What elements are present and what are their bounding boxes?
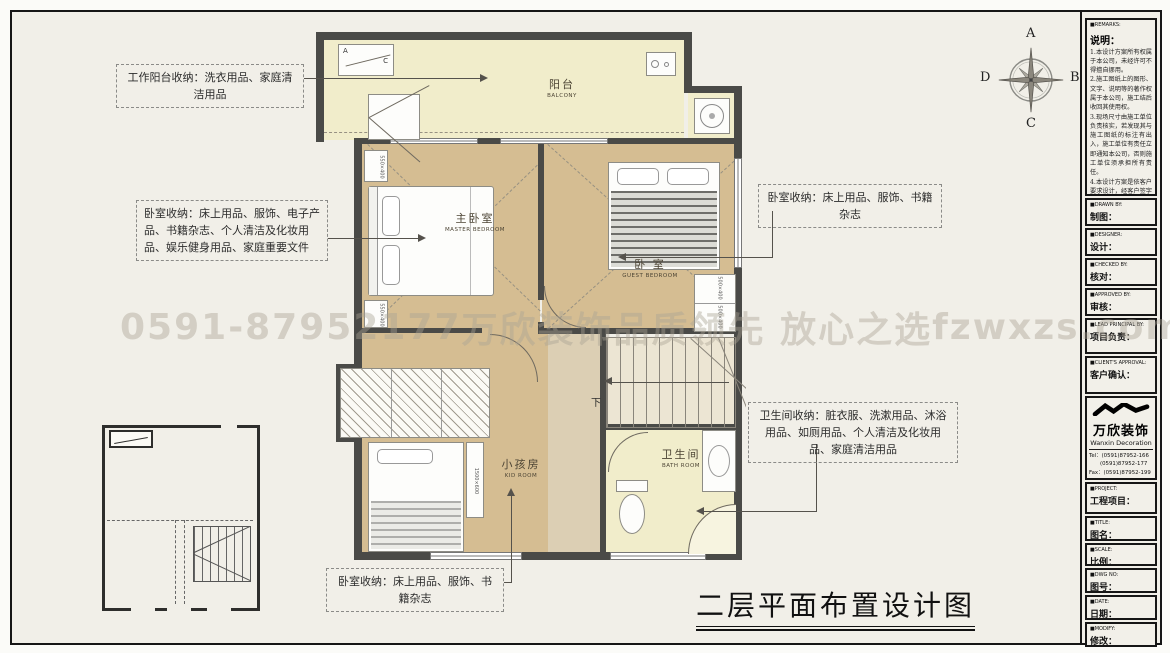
field-tag: ■DRAWN BY: xyxy=(1090,202,1152,209)
field-tag: ■TITLE: xyxy=(1090,520,1152,527)
pillow xyxy=(617,168,659,185)
sliding-door-window xyxy=(500,138,608,144)
nightstand-dim-label: 550×400 xyxy=(379,303,385,326)
pillow xyxy=(382,245,400,285)
cabinet-divider xyxy=(695,303,735,304)
date-field: ■DATE: 日期： xyxy=(1085,595,1157,620)
duvet-fold xyxy=(470,187,471,295)
remark-note: 1.本设计方案所有权属于本公司，未经许可不得擅自挪用。 xyxy=(1090,48,1152,76)
shaft-box xyxy=(368,94,420,140)
key-plan-gap xyxy=(131,605,155,611)
lift-c-label: C xyxy=(383,57,388,65)
company-block: 万欣装饰 Wanxin Decoration Tel：(0591)87952-1… xyxy=(1085,396,1157,480)
leader-line xyxy=(328,238,420,239)
sink-tap-icon xyxy=(664,62,669,67)
wall xyxy=(336,438,362,442)
wall xyxy=(600,428,606,554)
pillow xyxy=(382,196,400,236)
field-label: 核对： xyxy=(1090,270,1152,283)
leader-line xyxy=(304,78,482,79)
guest-bedroom-label: 卧 室 GUEST BEDROOM xyxy=(596,256,704,279)
balcony-label-zh: 阳台 xyxy=(522,76,602,92)
fax-line: Fax：(0591)87952-199 xyxy=(1089,469,1153,477)
leader-arrow xyxy=(418,234,426,242)
wall xyxy=(316,32,324,142)
modify-field: ■MODIFY: 修改： xyxy=(1085,622,1157,647)
leader-line xyxy=(626,257,773,258)
field-label: 修改： xyxy=(1090,634,1152,647)
key-plan-notch xyxy=(221,425,237,433)
window xyxy=(734,158,742,268)
leader-line xyxy=(704,511,817,512)
callout-kid-storage: 卧室收纳：床上用品、服饰、书籍杂志 xyxy=(326,568,504,612)
wall xyxy=(538,144,544,300)
lift-box: A C xyxy=(338,44,394,76)
bathroom-label: 卫生间 BATH ROOM xyxy=(638,446,724,469)
field-tag: ■LEAD PRINCIPAL BY: xyxy=(1090,322,1152,329)
key-plan-gap xyxy=(167,605,191,611)
remark-note: 2.施工图纸上的图形、文字、说明等的著作权属于本公司，施工结后收回其使用权。 xyxy=(1090,75,1152,112)
client-approval-field: ■CLIENT'S APPROVAL: 客户确认： xyxy=(1085,356,1157,394)
wardrobe-divider xyxy=(441,369,442,437)
guest-label-zh: 卧 室 xyxy=(596,256,704,272)
project-field: ■PROJECT: 工程项目： xyxy=(1085,482,1157,514)
master-bedroom-label: 主卧室 MASTER BEDROOM xyxy=(420,210,530,233)
callout-guest-storage: 卧室收纳：床上用品、服饰、书籍杂志 xyxy=(758,184,942,228)
nightstand: 550×400 xyxy=(364,300,388,328)
kid-bed xyxy=(368,442,464,552)
remark-note: 3.现场尺寸由施工单位负责核实，若发现其与施工图纸的标注有出入，施工单位有责任立… xyxy=(1090,113,1152,178)
master-bed xyxy=(368,186,494,296)
field-tag: ■SCALE: xyxy=(1090,547,1152,554)
checked-by-field: ■CHECKED BY: 核对： xyxy=(1085,258,1157,286)
field-label: 工程项目： xyxy=(1090,494,1152,507)
tel-line-2: (0591)87952-177 xyxy=(1089,460,1153,468)
field-tag: ■MODIFY: xyxy=(1090,626,1152,633)
designer-field: ■DESIGNER: 设计： xyxy=(1085,228,1157,256)
compass-a-label: A xyxy=(1026,26,1035,41)
duvet xyxy=(371,501,461,549)
pillow xyxy=(377,449,433,464)
toilet-bowl xyxy=(619,494,645,534)
kid-label-en: KID ROOM xyxy=(476,473,566,479)
field-label: 制图： xyxy=(1090,210,1152,223)
field-tag: ■CLIENT'S APPROVAL: xyxy=(1090,360,1152,367)
dwg-no-field: ■DWG NO: 图号： xyxy=(1085,568,1157,593)
field-tag: ■APPROVED BY: xyxy=(1090,292,1152,299)
leader-arrow xyxy=(507,488,515,496)
wall xyxy=(316,32,692,40)
title-field: ■TITLE: 图名： xyxy=(1085,516,1157,541)
key-plan-dash xyxy=(184,520,185,604)
toilet-tank xyxy=(616,480,648,492)
kid-desk: 1500×600 xyxy=(466,442,484,518)
stair-direction-arrow xyxy=(604,377,612,385)
key-plan xyxy=(102,425,260,611)
field-label: 图名： xyxy=(1090,528,1152,541)
headboard xyxy=(369,187,378,295)
stairs xyxy=(606,337,736,428)
compass-star-icon xyxy=(996,42,1066,118)
field-tag: ■DESIGNER: xyxy=(1090,232,1152,239)
guest-label-en: GUEST BEDROOM xyxy=(596,273,704,279)
field-label: 审核： xyxy=(1090,300,1152,313)
pillow xyxy=(667,168,709,185)
bath-label-zh: 卫生间 xyxy=(638,446,724,462)
remarks-heading: 说明： xyxy=(1090,36,1120,47)
nightstand-dim-label: 550×400 xyxy=(379,155,385,178)
sink-bowl-icon xyxy=(651,60,659,68)
compass-b-label: B xyxy=(1070,70,1080,85)
cabinet-dim-label: 500×400 xyxy=(717,305,723,328)
key-plan-stair-diag xyxy=(194,554,251,581)
brand-brush-icon xyxy=(1092,403,1150,416)
web-line: Web：WWW.fzwxzs.com xyxy=(1089,477,1153,480)
cabinet-dim-label: 500×400 xyxy=(717,276,723,299)
company-contact: Tel：(0591)87952-166 (0591)87952-177 Fax：… xyxy=(1089,449,1153,480)
field-label: 图号： xyxy=(1090,580,1152,593)
drawn-by-field: ■DRAWN BY: 制图： xyxy=(1085,198,1157,226)
leader-arrow xyxy=(480,74,488,82)
field-tag: ■DWG NO: xyxy=(1090,572,1152,579)
approved-by-field: ■APPROVED BY: 审核： xyxy=(1085,288,1157,316)
field-label: 比例： xyxy=(1090,555,1152,567)
master-label-zh: 主卧室 xyxy=(420,210,530,226)
remarks-tag: ■REMARKS: xyxy=(1090,22,1152,29)
nightstand: 550×400 xyxy=(364,150,388,182)
wall xyxy=(362,328,482,333)
title-block-sidebar: ■REMARKS: 说明： 1.本设计方案所有权属于本公司，未经许可不得擅自挪用… xyxy=(1080,12,1160,643)
compass-rose: A B C D xyxy=(980,26,1080,134)
sheet-frame: 0591-87952177 万欣装饰 品质领先 放心之选 fzwxzs.com … xyxy=(10,10,1162,645)
balcony-label: 阳台 BALCONY xyxy=(522,76,602,99)
callout-master-storage: 卧室收纳：床上用品、服饰、电子产品、书籍杂志、个人清洁及化妆用品、娱乐健身用品、… xyxy=(136,200,328,261)
remarks-section: ■REMARKS: 说明： 1.本设计方案所有权属于本公司，未经许可不得擅自挪用… xyxy=(1085,18,1157,196)
stair-down-label: 下 xyxy=(591,394,601,409)
compass-c-label: C xyxy=(1026,116,1036,131)
drawing-title-text: 二层平面布置设计图 xyxy=(696,584,975,627)
principal-field: ■LEAD PRINCIPAL BY: 项目负责： xyxy=(1085,318,1157,354)
drawing-title-underline xyxy=(696,629,975,631)
key-plan-lift xyxy=(109,430,153,448)
wardrobe xyxy=(340,368,490,438)
key-plan-dash xyxy=(175,520,176,604)
wall xyxy=(684,32,692,92)
scale-field: ■SCALE: 比例： xyxy=(1085,543,1157,566)
compass-d-label: D xyxy=(980,70,990,85)
leader-arrow xyxy=(618,253,626,261)
wardrobe-divider xyxy=(391,369,392,437)
key-plan-gap xyxy=(207,605,231,611)
stair-run-line xyxy=(611,382,729,383)
washing-machine-icon xyxy=(694,98,730,134)
wall xyxy=(354,138,362,560)
guest-cabinet: 500×400 500×400 xyxy=(694,274,736,332)
lift-a-label: A xyxy=(343,47,348,55)
key-plan-dash xyxy=(107,520,253,521)
field-label: 日期： xyxy=(1090,607,1152,620)
balcony-sink xyxy=(646,52,676,76)
key-plan-stairs xyxy=(193,526,251,582)
company-name-zh: 万欣装饰 xyxy=(1089,420,1153,439)
remark-note: 4.本设计方案是依客户要求设计，经客户签字确认为同意认可，不得随意更改。 xyxy=(1090,178,1152,196)
leader-arrow xyxy=(696,507,704,515)
field-tag: ■DATE: xyxy=(1090,599,1152,606)
company-name-en: Wanxin Decoration xyxy=(1089,439,1153,447)
washer-dot xyxy=(709,113,715,119)
field-tag: ■PROJECT: xyxy=(1090,486,1152,493)
kid-label-zh: 小孩房 xyxy=(476,456,566,472)
key-plan-stair-diag xyxy=(193,526,250,553)
window xyxy=(430,552,522,560)
field-label: 项目负责： xyxy=(1090,330,1152,343)
hall-floor xyxy=(548,332,606,554)
drawing-title: 二层平面布置设计图 xyxy=(696,584,975,631)
bath-label-en: BATH ROOM xyxy=(638,463,724,469)
master-label-en: MASTER BEDROOM xyxy=(420,227,530,233)
field-label: 客户确认： xyxy=(1090,368,1152,381)
field-tag: ■CHECKED BY: xyxy=(1090,262,1152,269)
floor-plan: A C 550×400 550×400 xyxy=(310,28,746,562)
field-label: 设计： xyxy=(1090,240,1152,253)
callout-balcony-storage: 工作阳台收纳：洗衣用品、家庭清洁用品 xyxy=(116,64,304,108)
callout-bath-storage: 卫生间收纳：脏衣服、洗漱用品、沐浴用品、如厕用品、个人清洁及化妆用品、家庭清洁用… xyxy=(748,402,958,463)
key-plan-lift-diag xyxy=(114,437,148,444)
leader-line xyxy=(511,494,512,583)
kid-room-label: 小孩房 KID ROOM xyxy=(476,456,566,479)
balcony-label-en: BALCONY xyxy=(522,93,602,99)
tel-line-1: Tel：(0591)87952-166 xyxy=(1089,452,1153,460)
